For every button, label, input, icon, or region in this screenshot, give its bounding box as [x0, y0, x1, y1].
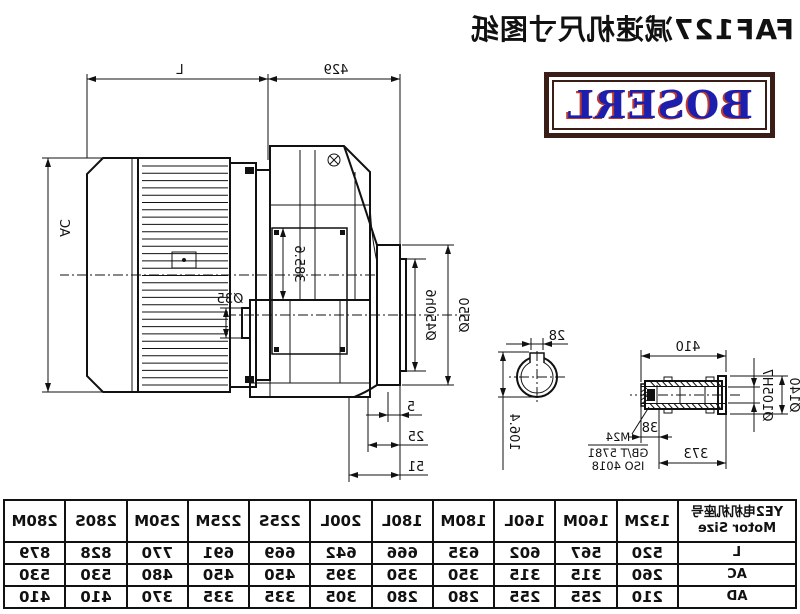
table-cell: 260 — [617, 564, 678, 586]
dim-arrowhead — [445, 376, 451, 385]
dim-arrowhead — [500, 352, 506, 361]
callout-bolt-std2: ISO 4018 — [592, 459, 645, 473]
table-cell: 669 — [249, 542, 310, 564]
dim-center-height: 385.6 — [291, 245, 306, 282]
dim-arrowhead — [659, 460, 668, 466]
dim-arrowhead — [522, 341, 531, 347]
table-cell: 530 — [4, 564, 65, 586]
dim-arrowhead — [349, 472, 358, 478]
table-cell: 770 — [127, 542, 188, 564]
table-cell: 370 — [127, 586, 188, 608]
dim-arrowhead — [751, 378, 757, 387]
dim-arrowhead — [717, 460, 726, 466]
dim-arrowhead — [779, 405, 785, 414]
table-cell: 315 — [555, 564, 616, 586]
table-cell: 255 — [555, 586, 616, 608]
dim-shaft-total: 410 — [676, 340, 701, 355]
table-cell: 410 — [65, 586, 126, 608]
table-header-line1: YE2电机机座号 — [679, 505, 795, 521]
dim-gearbox-length: 429 — [324, 63, 349, 78]
dim-arrowhead — [751, 403, 757, 412]
dim-arrowhead — [659, 434, 668, 440]
callout-bolt: M24 — [606, 430, 631, 444]
dim-arrowhead — [717, 353, 726, 359]
dim-step1: 5 — [407, 400, 415, 415]
rear-shaft-cap — [242, 308, 250, 338]
dim-arrowhead — [268, 76, 277, 82]
flange-bell-bottom — [354, 385, 377, 397]
callout-bolt-std1: GB/T 5781 — [588, 446, 649, 460]
dim-shaft-od: Ø140 — [786, 377, 800, 412]
table-cell: 180M — [433, 500, 494, 542]
dim-arrowhead — [412, 362, 418, 371]
motor-fan-cover — [87, 158, 138, 392]
dim-thread-length: 38 — [642, 421, 659, 436]
table-cell: 255 — [494, 586, 555, 608]
table-cell: 879 — [4, 542, 65, 564]
motor-size-table: YE2电机机座号Motor Size132M160M160L180M180L20… — [3, 499, 797, 609]
dim-arrowhead — [391, 442, 400, 448]
table-cell: 210 — [617, 586, 678, 608]
table-cell: 350 — [433, 564, 494, 586]
table-cell: 160L — [494, 500, 555, 542]
dim-arrowhead — [391, 472, 400, 478]
table-cell: L — [678, 542, 796, 564]
table-cell: 132M — [617, 500, 678, 542]
table-cell: 642 — [310, 542, 371, 564]
table-cell: 520 — [617, 542, 678, 564]
table-header-motor-size: YE2电机机座号Motor Size — [678, 500, 796, 542]
table-header-line2: Motor Size — [679, 521, 795, 537]
bolt-head — [245, 167, 254, 174]
table-cell: 530 — [65, 564, 126, 586]
table-cell: 225S — [249, 500, 310, 542]
cover-bolt — [340, 347, 345, 352]
dim-arrowhead — [779, 376, 785, 385]
dim-flange-od: Ø550 — [455, 297, 470, 332]
drawing-linework — [42, 74, 788, 482]
dim-step2: 25 — [408, 430, 425, 445]
table-cell: 567 — [555, 542, 616, 564]
dim-arrowhead — [45, 383, 51, 392]
table-cell: 350 — [372, 564, 433, 586]
table-row: AD210255255280280305335335370410410 — [4, 586, 796, 608]
dim-arrowhead — [45, 158, 51, 167]
dim-arrowhead — [280, 228, 286, 237]
dim-arrowhead — [500, 388, 506, 397]
dim-step3: 51 — [408, 460, 425, 475]
table-cell: 160M — [555, 500, 616, 542]
drawing-sheet: FAF127减速机尺寸图纸 BOSERL — [0, 0, 800, 614]
dim-arrowhead — [87, 76, 96, 82]
dim-arrowhead — [445, 245, 451, 254]
table-cell: 635 — [433, 542, 494, 564]
dimension-labels: L 429 AC 385.6 Ø550 Ø450h6 Ø35 5 25 51 2… — [56, 63, 800, 475]
table-cell: 335 — [249, 586, 310, 608]
table-cell: 280 — [372, 586, 433, 608]
dim-arrowhead — [379, 412, 388, 418]
dim-motor-diameter: AC — [56, 219, 71, 237]
table-cell: AD — [678, 586, 796, 608]
table-row: L520567602635666642669691770828879 — [4, 542, 796, 564]
table-cell: 305 — [310, 586, 371, 608]
cover-bolt — [274, 347, 279, 352]
dim-arrowhead — [259, 76, 268, 82]
table-cell: 335 — [188, 586, 249, 608]
table-cell: 480 — [127, 564, 188, 586]
dim-arrowhead — [641, 353, 650, 359]
cover-bolt — [274, 230, 279, 235]
table-cell: 395 — [310, 564, 371, 586]
table-cell: 315 — [494, 564, 555, 586]
table-cell: 410 — [4, 586, 65, 608]
table-cell: 450 — [249, 564, 310, 586]
dim-arrowhead — [632, 434, 641, 440]
drawing-svg: L 429 AC 385.6 Ø550 Ø450h6 Ø35 5 25 51 2… — [0, 0, 800, 500]
dim-flange-spigot: Ø450h6 — [422, 289, 437, 341]
dim-keyway-height: 106.4 — [506, 413, 521, 450]
dim-shaft-body: 373 — [684, 447, 709, 462]
table-cell: 666 — [372, 542, 433, 564]
table-cell: 200L — [310, 500, 371, 542]
table-row: AC260315315350350395450450480530530 — [4, 564, 796, 586]
table-cell: AC — [678, 564, 796, 586]
table-cell: 250M — [127, 500, 188, 542]
table-cell: 280S — [65, 500, 126, 542]
dim-keyway-width: 28 — [549, 329, 566, 344]
dim-rear-cap: Ø35 — [217, 292, 244, 307]
table-cell: 691 — [188, 542, 249, 564]
dim-arrowhead — [391, 76, 400, 82]
cover-bolt — [340, 230, 345, 235]
dim-motor-length: L — [176, 63, 184, 78]
output-flange — [344, 146, 406, 397]
dim-arrowhead — [280, 291, 286, 300]
table-cell: 225M — [188, 500, 249, 542]
table-cell: 280 — [433, 586, 494, 608]
dim-arrowhead — [412, 259, 418, 268]
dim-arrowhead — [368, 442, 377, 448]
table-cell: 602 — [494, 542, 555, 564]
table-cell: 180L — [372, 500, 433, 542]
dim-bore: Ø105H7 — [759, 368, 774, 421]
table-cell: 450 — [188, 564, 249, 586]
table-cell: 828 — [65, 542, 126, 564]
table-cell: 280M — [4, 500, 65, 542]
